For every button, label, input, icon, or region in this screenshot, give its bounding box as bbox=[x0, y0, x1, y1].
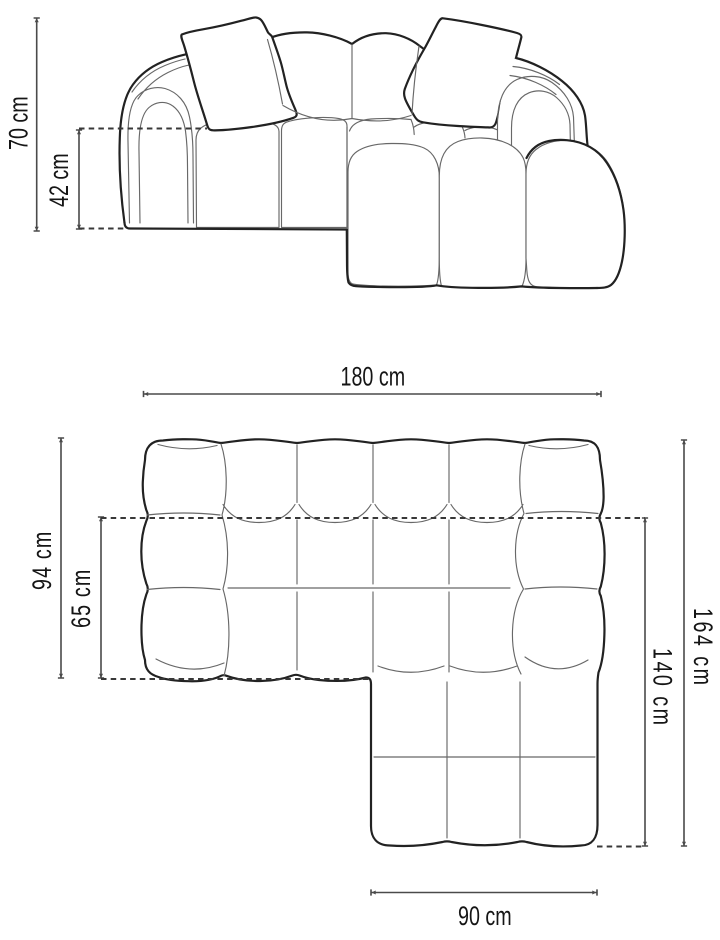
svg-text:90 cm: 90 cm bbox=[458, 902, 512, 932]
svg-text:180 cm: 180 cm bbox=[341, 363, 406, 393]
svg-text:164 cm: 164 cm bbox=[687, 608, 717, 688]
svg-text:65 cm: 65 cm bbox=[67, 569, 97, 628]
svg-text:70 cm: 70 cm bbox=[5, 96, 35, 150]
svg-text:94 cm: 94 cm bbox=[28, 531, 58, 590]
svg-text:140 cm: 140 cm bbox=[647, 648, 677, 728]
svg-text:42 cm: 42 cm bbox=[45, 153, 75, 207]
